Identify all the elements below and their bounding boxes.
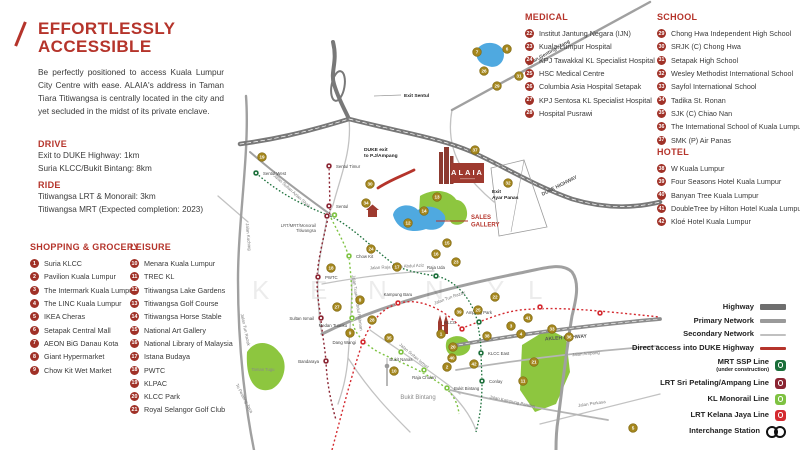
item-number-badge: 29	[657, 29, 666, 38]
legend-label: Interchange Station	[689, 427, 760, 436]
alaia-logo: ALAIA	[451, 163, 484, 183]
svg-text:22: 22	[492, 295, 498, 300]
road-label: Jalan Tun Razak	[240, 313, 252, 347]
map-marker-20: 20	[449, 343, 458, 352]
item-number-badge: 25	[525, 69, 534, 78]
svg-text:23: 23	[453, 260, 459, 265]
item-label: HSC Medical Centre	[539, 69, 605, 78]
svg-text:1: 1	[440, 332, 443, 337]
list-item: 19KLPAC	[130, 377, 233, 390]
legend-row: KL Monorail Line	[576, 394, 786, 405]
map-marker-30: 30	[366, 180, 375, 189]
list-item: 3The Intermark Kuala Lumpur	[30, 284, 140, 297]
sales-gallery-label: GALLERY	[471, 223, 499, 229]
map-marker-8: 8	[356, 296, 365, 305]
ride-line2: Titiwangsa MRT (Expected completion: 202…	[38, 204, 203, 217]
svg-text:27: 27	[334, 305, 340, 310]
watermark-letter: N	[368, 275, 387, 305]
svg-text:36: 36	[566, 335, 572, 340]
item-label: Suria KLCC	[44, 259, 82, 268]
station-chow-kit: Chow Kit	[346, 253, 374, 259]
watermark-letter: L	[528, 275, 542, 305]
station-label: Sultan Ismail	[289, 316, 314, 321]
svg-text:37: 37	[472, 148, 478, 153]
intro-paragraph: Be perfectly positioned to access Kuala …	[38, 66, 224, 118]
ride-heading: RIDE	[38, 180, 203, 190]
item-number-badge: 23	[525, 42, 534, 51]
station-label: Dang Wangi	[333, 340, 357, 345]
list-item: 29Chong Hwa Independent High School	[657, 27, 800, 40]
station-bukit-bintang: Bukit Bintang	[444, 385, 480, 391]
svg-text:34: 34	[363, 201, 369, 206]
item-number-badge: 22	[525, 29, 534, 38]
map-legend: HighwayPrimary NetworkSecondary NetworkD…	[576, 303, 786, 443]
item-number-badge: 1	[30, 259, 39, 268]
legend-line-badge-icon	[775, 378, 786, 389]
legend-note: (under construction)	[716, 367, 769, 373]
item-label: KPJ Sentosa KL Specialist Hospital	[539, 96, 652, 105]
station-label: KLCC	[445, 320, 456, 325]
svg-text:30: 30	[367, 182, 373, 187]
station-label: Sentul	[336, 204, 348, 209]
list-item: 26Columbia Asia Hospital Setapak	[525, 80, 655, 93]
item-label: Giant Hypermarket	[44, 352, 104, 361]
item-number-badge: 32	[657, 69, 666, 78]
legend-row: Interchange Station	[576, 426, 786, 438]
item-number-badge: 34	[657, 96, 666, 105]
item-label: Four Seasons Hotel Kuala Lumpur	[671, 177, 781, 186]
svg-text:19: 19	[259, 155, 265, 160]
station-sentul-timur: Sentul Timur	[326, 163, 361, 169]
category-medical: MEDICAL22Institut Jantung Negara (IJN)23…	[525, 12, 655, 120]
list-item: 2Pavilion Kuala Lumpur	[30, 270, 140, 283]
station-bandaraya: Bandaraya	[298, 358, 329, 364]
map-marker-11: 11	[519, 377, 528, 386]
list-item: 13Titiwangsa Golf Course	[130, 297, 233, 310]
station-conlay: Conlay	[479, 378, 503, 384]
svg-text:35: 35	[386, 336, 392, 341]
exit-sentul-callout	[374, 95, 401, 96]
category-school: SCHOOL29Chong Hwa Independent High Schoo…	[657, 12, 800, 147]
item-label: Columbia Asia Hospital Setapak	[539, 82, 641, 91]
map-marker-34: 34	[362, 199, 371, 208]
map-marker-2: 2	[443, 363, 452, 372]
legend-label: Primary Network	[694, 317, 754, 326]
item-number-badge: 20	[130, 392, 139, 401]
station-label: PWTC	[325, 275, 338, 280]
svg-text:10: 10	[391, 369, 397, 374]
map-marker-37: 37	[471, 146, 480, 155]
map-marker-4: 4	[517, 330, 526, 339]
item-number-badge: 36	[657, 122, 666, 131]
item-label: DoubleTree by Hilton Hotel Kuala Lumpur	[671, 204, 800, 213]
legend-road-swatch	[760, 319, 786, 323]
svg-text:8: 8	[359, 298, 362, 303]
item-label: Pavilion Kuala Lumpur	[44, 272, 116, 281]
item-number-badge: 26	[525, 82, 534, 91]
station-label: Bandaraya	[298, 359, 319, 364]
area-label: Taman Tugu	[251, 367, 275, 372]
map-marker-10: 10	[390, 367, 399, 376]
legend-line-badge-icon	[775, 360, 786, 371]
list-item: 4The LINC Kuala Lumpur	[30, 297, 140, 310]
item-number-badge: 8	[30, 352, 39, 361]
svg-text:12: 12	[405, 221, 411, 226]
map-marker-38: 38	[483, 332, 492, 341]
legend-road-swatch	[760, 304, 786, 310]
map-marker-12: 12	[404, 219, 413, 228]
legend-road-swatch	[760, 334, 786, 337]
item-label: TREC KL	[144, 272, 174, 281]
svg-text:9: 9	[349, 331, 352, 336]
road-label: Jalan Kuching	[245, 223, 252, 251]
list-item: 30SRJK (C) Chong Hwa	[657, 40, 800, 53]
exit-label: Exit Sentul	[404, 93, 430, 99]
item-label: Institut Jantung Negara (IJN)	[539, 29, 631, 38]
station-label: Conlay	[489, 379, 503, 384]
list-item: 31Setapak High School	[657, 54, 800, 67]
category-heading: MEDICAL	[525, 12, 655, 22]
item-number-badge: 37	[657, 136, 666, 145]
svg-text:13: 13	[434, 195, 440, 200]
list-item: 38W Kuala Lumpur	[657, 162, 800, 175]
item-label: Kloé Hotel Kuala Lumpur	[671, 217, 751, 226]
map-marker-42: 42	[470, 360, 479, 369]
svg-text:18: 18	[328, 266, 334, 271]
item-number-badge: 17	[130, 352, 139, 361]
map-marker-9: 9	[346, 329, 355, 338]
station-label: Raja Chulan	[412, 375, 436, 380]
category-heading: HOTEL	[657, 147, 800, 157]
map-marker-41: 41	[524, 314, 533, 323]
item-label: Wesley Methodist International School	[671, 69, 793, 78]
page-title-line1: EFFORTLESSLY	[38, 20, 175, 38]
drive-line2: Suria KLCC/Bukit Bintang: 8km	[38, 163, 152, 176]
legend-row: Direct access into DUKE Highway	[576, 344, 786, 353]
svg-text:26: 26	[481, 69, 487, 74]
item-label: SRJK (C) Chong Hwa	[671, 42, 741, 51]
list-item: 5IKEA Cheras	[30, 310, 140, 323]
map-marker-7: 7	[473, 48, 482, 57]
category-hotel: HOTEL38W Kuala Lumpur39Four Seasons Hote…	[657, 147, 800, 228]
duke-direct-access	[378, 170, 414, 188]
page-title: EFFORTLESSLY ACCESSIBLE	[38, 20, 175, 57]
area-label: Bukit Bintang	[400, 395, 435, 401]
item-number-badge: 30	[657, 42, 666, 51]
item-label: SJK (C) Chiao Nan	[671, 109, 732, 118]
station-label: Medan Tuanku	[319, 323, 348, 328]
legend-label: Secondary Network	[683, 330, 754, 339]
svg-text:17: 17	[394, 265, 400, 270]
map-marker-17: 17	[393, 263, 402, 272]
item-label: Istana Budaya	[144, 352, 190, 361]
station-dot	[332, 212, 338, 218]
map-marker-21: 21	[530, 358, 539, 367]
map-marker-32: 32	[504, 179, 513, 188]
station-sentul: Sentul	[326, 203, 348, 209]
station-sultan-ismail: Sultan Ismail	[289, 315, 324, 321]
item-label: Titiwangsa Golf Course	[144, 299, 218, 308]
svg-text:38: 38	[484, 334, 490, 339]
item-number-badge: 33	[657, 82, 666, 91]
svg-text:15: 15	[444, 241, 450, 246]
list-item: 27KPJ Sentosa KL Specialist Hospital	[525, 93, 655, 106]
map-marker-14: 14	[420, 207, 429, 216]
item-label: Setapak Central Mall	[44, 326, 111, 335]
map-marker-31: 31	[515, 72, 524, 81]
svg-text:33: 33	[549, 327, 555, 332]
drive-section: DRIVE Exit to DUKE Highway: 1km Suria KL…	[38, 139, 152, 175]
list-item: 14Titiwangsa Horse Stable	[130, 310, 233, 323]
map-marker-35: 35	[385, 334, 394, 343]
svg-text:20: 20	[450, 345, 456, 350]
item-label: Banyan Tree Kuala Lumpur	[671, 191, 759, 200]
item-label: Kuala Lumpur Hospital	[539, 42, 612, 51]
map-marker-39: 39	[455, 308, 464, 317]
station-sentul-west: Sentul West	[253, 170, 287, 176]
item-number-badge: 18	[130, 366, 139, 375]
item-label: KPJ Tawakkal KL Specialist Hospital	[539, 56, 655, 65]
station-pwtc: PWTC	[315, 274, 338, 280]
titiwangsa-interchange-label: Titiwangsa	[296, 228, 317, 233]
item-number-badge: 13	[130, 299, 139, 308]
list-item: 12Titiwangsa Lake Gardens	[130, 284, 233, 297]
legend-road-swatch	[760, 347, 786, 351]
legend-row: MRT SSP Line(under construction)	[576, 358, 786, 373]
item-number-badge: 39	[657, 177, 666, 186]
map-marker-1: 1	[437, 330, 446, 339]
list-item: 8Giant Hypermarket	[30, 350, 140, 363]
item-number-badge: 12	[130, 286, 139, 295]
list-item: 18PWTC	[130, 363, 233, 376]
list-item: 22Institut Jantung Negara (IJN)	[525, 27, 655, 40]
legend-label: MRT SSP Line(under construction)	[716, 358, 769, 373]
item-number-badge: 41	[657, 204, 666, 213]
svg-text:2: 2	[446, 365, 449, 370]
station-label: Kampung Baru	[384, 292, 413, 297]
list-item: 11TREC KL	[130, 270, 233, 283]
map-marker-18: 18	[327, 264, 336, 273]
station-dot	[537, 304, 543, 310]
svg-text:32: 32	[505, 181, 511, 186]
list-item: 20KLCC Park	[130, 390, 233, 403]
ride-line1: Titiwangsa LRT & Monorail: 3km	[38, 191, 203, 204]
legend-label: LRT Kelana Jaya Line	[691, 411, 770, 420]
list-item: 40Banyan Tree Kuala Lumpur	[657, 189, 800, 202]
road-label: Jalan Sultan Ismail	[398, 342, 429, 370]
item-label: Sayfol International School	[671, 82, 757, 91]
list-item: 37SMK (P) Air Panas	[657, 133, 800, 146]
map-marker-19: 19	[258, 153, 267, 162]
item-label: AEON BiG Danau Kota	[44, 339, 118, 348]
watermark-letter: K	[252, 275, 270, 305]
drive-heading: DRIVE	[38, 139, 152, 149]
item-number-badge: 19	[130, 379, 139, 388]
exit-label: to P.J/Ampang	[364, 153, 398, 159]
svg-text:4: 4	[520, 332, 523, 337]
list-item: 25HSC Medical Centre	[525, 67, 655, 80]
item-number-badge: 5	[30, 312, 39, 321]
item-label: Chow Kit Wet Market	[44, 366, 111, 375]
item-label: IKEA Cheras	[44, 312, 85, 321]
item-label: PWTC	[144, 366, 165, 375]
item-number-badge: 21	[130, 405, 139, 414]
list-item: 1Suria KLCC	[30, 257, 140, 270]
item-number-badge: 7	[30, 339, 39, 348]
legend-label: LRT Sri Petaling/Ampang Line	[660, 379, 769, 388]
exit-label: Exit	[492, 189, 501, 195]
map-marker-33: 33	[548, 325, 557, 334]
item-number-badge: 38	[657, 164, 666, 173]
list-item: 39Four Seasons Hotel Kuala Lumpur	[657, 175, 800, 188]
legend-label: KL Monorail Line	[708, 395, 769, 404]
station-label: Raja Uda	[427, 265, 446, 270]
kl-tower-icon	[385, 358, 390, 386]
map-marker-28: 28	[368, 316, 377, 325]
map-marker-26: 26	[480, 67, 489, 76]
legend-label: Highway	[723, 303, 754, 312]
map-marker-36: 36	[565, 333, 574, 342]
legend-line-badge-icon	[775, 410, 786, 421]
item-number-badge: 24	[525, 56, 534, 65]
exit-label: DUKE exit	[364, 147, 388, 153]
item-number-badge: 11	[130, 272, 139, 281]
list-item: 17Istana Budaya	[130, 350, 233, 363]
list-item: 15National Art Gallery	[130, 323, 233, 336]
legend-row: Highway	[576, 303, 786, 312]
map-marker-13: 13	[433, 193, 442, 202]
item-label: SMK (P) Air Panas	[671, 136, 731, 145]
item-label: Tadika St. Ronan	[671, 96, 726, 105]
list-item: 36The International School of Kuala Lump…	[657, 120, 800, 133]
svg-text:39: 39	[456, 310, 462, 315]
map-marker-3: 3	[507, 322, 516, 331]
list-item: 21Royal Selangor Golf Club	[130, 403, 233, 416]
item-number-badge: 35	[657, 109, 666, 118]
item-label: The LINC Kuala Lumpur	[44, 299, 122, 308]
legend-label: Direct access into DUKE Highway	[632, 344, 754, 353]
item-label: The International School of Kuala Lumpur	[671, 122, 800, 131]
page-title-line2: ACCESSIBLE	[38, 38, 175, 56]
list-item: 10Menara Kuala Lumpur	[130, 257, 233, 270]
map-marker-40: 40	[448, 354, 457, 363]
exit-label: Ayar Panas	[492, 195, 519, 201]
list-item: 32Wesley Methodist International School	[657, 67, 800, 80]
category-shopping-grocery: SHOPPING & GROCERY1Suria KLCC2Pavilion K…	[30, 242, 140, 377]
list-item: 16National Library of Malaysia	[130, 337, 233, 350]
svg-text:28: 28	[369, 318, 375, 323]
legend-row: Primary Network	[576, 317, 786, 326]
list-item: 23Kuala Lumpur Hospital	[525, 40, 655, 53]
category-heading: SHOPPING & GROCERY	[30, 242, 140, 252]
list-item: 9Chow Kit Wet Market	[30, 363, 140, 376]
map-marker-16: 16	[432, 250, 441, 259]
list-item: 41DoubleTree by Hilton Hotel Kuala Lumpu…	[657, 202, 800, 215]
item-number-badge: 40	[657, 191, 666, 200]
station-label: Bukit Bintang	[454, 386, 480, 391]
station-dot	[324, 213, 330, 219]
svg-text:29: 29	[494, 84, 500, 89]
item-label: W Kuala Lumpur	[671, 164, 725, 173]
item-number-badge: 28	[525, 109, 534, 118]
svg-text:3: 3	[510, 324, 513, 329]
station-label: Sentul West	[263, 171, 287, 176]
svg-text:24: 24	[368, 247, 374, 252]
item-label: KLPAC	[144, 379, 167, 388]
item-number-badge: 9	[30, 366, 39, 375]
item-number-badge: 16	[130, 339, 139, 348]
list-item: 33Sayfol International School	[657, 80, 800, 93]
item-number-badge: 2	[30, 272, 39, 281]
category-leisure: LEISURE10Menara Kuala Lumpur11TREC KL12T…	[130, 242, 233, 417]
svg-text:42: 42	[471, 362, 477, 367]
map-marker-23: 23	[452, 258, 461, 267]
station-label: KLCC East	[488, 351, 510, 356]
map-marker-22: 22	[491, 293, 500, 302]
svg-text:41: 41	[525, 316, 531, 321]
category-heading: LEISURE	[130, 242, 233, 252]
item-number-badge: 27	[525, 96, 534, 105]
item-label: KLCC Park	[144, 392, 180, 401]
list-item: 24KPJ Tawakkal KL Specialist Hospital	[525, 54, 655, 67]
legend-line-badge-icon	[775, 394, 786, 405]
road-label: Jalan Sultan Azlan Shah	[273, 173, 312, 209]
item-number-badge: 42	[657, 217, 666, 226]
list-item: 6Setapak Central Mall	[30, 323, 140, 336]
item-label: National Art Gallery	[144, 326, 206, 335]
map-marker-29: 29	[493, 82, 502, 91]
legend-row: LRT Sri Petaling/Ampang Line	[576, 378, 786, 389]
svg-text:11: 11	[521, 379, 526, 384]
item-label: Royal Selangor Golf Club	[144, 405, 225, 414]
item-number-badge: 15	[130, 326, 139, 335]
interchange-icon	[766, 426, 786, 438]
svg-text:ALAIA: ALAIA	[451, 168, 484, 177]
item-number-badge: 31	[657, 56, 666, 65]
station-klcc-east: KLCC East	[478, 350, 510, 356]
svg-text:25: 25	[475, 308, 481, 313]
svg-text:14: 14	[421, 209, 427, 214]
legend-row: LRT Kelana Jaya Line	[576, 410, 786, 421]
item-label: Titiwangsa Horse Stable	[144, 312, 222, 321]
list-item: 28Hospital Pusrawi	[525, 107, 655, 120]
station-label: Sentul Timur	[336, 164, 361, 169]
station-dang-wangi: Dang Wangi	[333, 339, 367, 345]
item-label: Chong Hwa Independent High School	[671, 29, 791, 38]
item-label: Setapak High School	[671, 56, 738, 65]
list-item: 34Tadika St. Ronan	[657, 93, 800, 106]
map-marker-27: 27	[333, 303, 342, 312]
map-marker-15: 15	[443, 239, 452, 248]
map-marker-25: 25	[474, 306, 483, 315]
list-item: 42Kloé Hotel Kuala Lumpur	[657, 215, 800, 228]
item-label: Titiwangsa Lake Gardens	[144, 286, 225, 295]
ride-section: RIDE Titiwangsa LRT & Monorail: 3km Titi…	[38, 180, 203, 216]
item-number-badge: 10	[130, 259, 139, 268]
item-number-badge: 4	[30, 299, 39, 308]
station-label: Bukit Nanas	[389, 357, 412, 362]
item-number-badge: 14	[130, 312, 139, 321]
drive-line1: Exit to DUKE Highway: 1km	[38, 150, 152, 163]
item-label: Hospital Pusrawi	[539, 109, 593, 118]
svg-text:7: 7	[476, 50, 479, 55]
item-label: Menara Kuala Lumpur	[144, 259, 215, 268]
sales-gallery-label: SALES	[471, 215, 491, 221]
list-item: 7AEON BiG Danau Kota	[30, 337, 140, 350]
map-marker-6: 6	[503, 45, 512, 54]
item-label: National Library of Malaysia	[144, 339, 233, 348]
svg-text:21: 21	[531, 360, 537, 365]
